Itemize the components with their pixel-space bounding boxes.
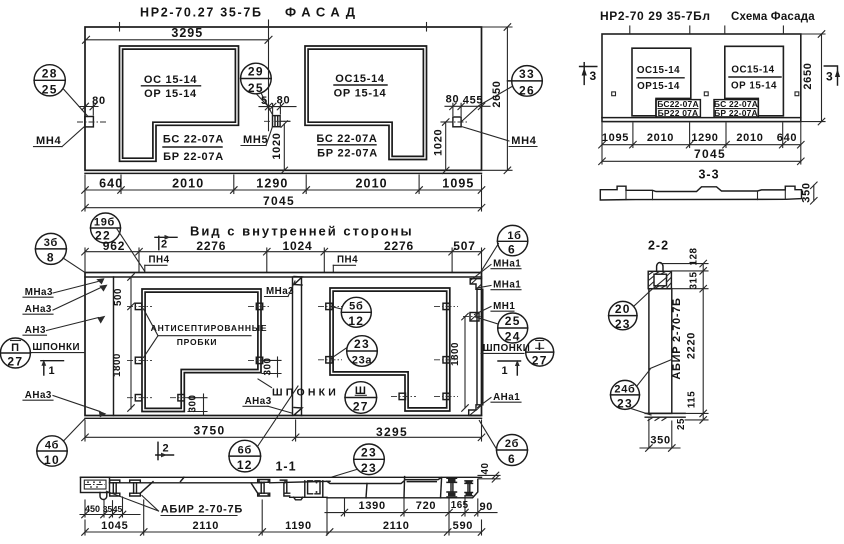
svg-text:315: 315: [689, 272, 700, 290]
svg-text:МНа1: МНа1: [493, 280, 521, 291]
svg-text:1: 1: [49, 365, 56, 377]
svg-text:ШПОНКИ: ШПОНКИ: [483, 343, 531, 354]
svg-text:ФАСАД: ФАСАД: [285, 5, 361, 20]
svg-text:165: 165: [451, 500, 469, 511]
svg-text:19б: 19б: [94, 217, 115, 229]
svg-text:128: 128: [689, 248, 700, 266]
svg-text:Вид с внутренней стороны: Вид с внутренней стороны: [190, 224, 414, 239]
svg-text:1020: 1020: [433, 129, 445, 156]
svg-text:НР2-70 29 35-7Бл: НР2-70 29 35-7Бл: [600, 9, 711, 23]
svg-text:2: 2: [161, 239, 168, 251]
svg-text:6б: 6б: [238, 445, 252, 457]
svg-text:23: 23: [361, 446, 377, 460]
svg-text:П: П: [11, 342, 20, 354]
svg-text:7045: 7045: [694, 147, 726, 161]
svg-text:80: 80: [446, 94, 460, 106]
svg-text:БР 22-07А: БР 22-07А: [163, 151, 224, 163]
svg-text:1800: 1800: [112, 353, 123, 377]
svg-text:80: 80: [277, 95, 291, 107]
svg-text:640: 640: [99, 177, 123, 191]
svg-text:1095: 1095: [442, 177, 474, 191]
svg-text:ОР 15-14: ОР 15-14: [144, 88, 197, 100]
svg-text:10: 10: [44, 453, 60, 467]
svg-text:1095: 1095: [602, 132, 629, 144]
svg-text:450: 450: [85, 504, 100, 514]
svg-text:90: 90: [479, 501, 493, 513]
svg-text:2010: 2010: [647, 132, 674, 144]
svg-text:2-2: 2-2: [648, 239, 669, 253]
svg-text:МН5: МН5: [243, 134, 268, 146]
svg-text:6: 6: [508, 243, 516, 257]
svg-text:2650: 2650: [491, 80, 503, 107]
svg-text:ПРОБКИ: ПРОБКИ: [177, 337, 218, 347]
svg-text:2010: 2010: [172, 177, 204, 191]
svg-text:ОС 15-14: ОС 15-14: [144, 74, 197, 86]
svg-text:ОС15-14: ОС15-14: [731, 65, 774, 76]
svg-text:115: 115: [687, 391, 698, 408]
svg-text:3295: 3295: [376, 425, 408, 439]
svg-text:2б: 2б: [505, 438, 519, 450]
svg-text:АНа3: АНа3: [25, 390, 52, 401]
svg-text:7045: 7045: [263, 194, 295, 208]
svg-text:640: 640: [777, 132, 797, 144]
svg-text:3б: 3б: [44, 237, 58, 249]
svg-text:1390: 1390: [359, 500, 386, 512]
svg-text:23: 23: [354, 337, 370, 351]
svg-text:Схема Фасада: Схема Фасада: [731, 11, 815, 23]
svg-text:АНа3: АНа3: [245, 396, 272, 407]
svg-text:АНТИСЕПТИРОВАННЫЕ: АНТИСЕПТИРОВАННЫЕ: [151, 323, 268, 333]
svg-text:I: I: [538, 341, 542, 353]
svg-text:2110: 2110: [383, 520, 410, 532]
svg-text:2010: 2010: [355, 177, 387, 191]
svg-text:БР22 07А: БР22 07А: [658, 108, 699, 118]
svg-text:29: 29: [248, 65, 264, 79]
svg-text:БР 22-07А: БР 22-07А: [317, 148, 378, 160]
svg-text:1190: 1190: [285, 520, 312, 532]
svg-text:300: 300: [263, 358, 274, 376]
svg-text:1: 1: [502, 365, 509, 377]
svg-text:МНа3: МНа3: [25, 287, 53, 298]
svg-text:25: 25: [676, 418, 687, 430]
svg-text:27: 27: [7, 355, 23, 369]
svg-text:1045: 1045: [101, 520, 128, 532]
svg-text:ОС15-14: ОС15-14: [637, 65, 680, 76]
svg-text:2: 2: [163, 443, 170, 455]
svg-text:20: 20: [615, 302, 631, 316]
svg-text:27: 27: [532, 354, 548, 368]
svg-text:350: 350: [801, 182, 813, 202]
svg-text:БР 22-07А: БР 22-07А: [714, 108, 758, 118]
svg-text:ОР15-14: ОР15-14: [637, 81, 680, 92]
svg-text:507: 507: [453, 239, 475, 253]
svg-text:АБИР 2-70-7Б: АБИР 2-70-7Б: [161, 504, 243, 516]
svg-text:33: 33: [519, 67, 535, 81]
svg-text:23: 23: [615, 317, 631, 331]
svg-text:25: 25: [505, 314, 521, 328]
svg-text:1б: 1б: [507, 230, 521, 242]
svg-text:АНа3: АНа3: [25, 304, 52, 315]
svg-text:3: 3: [590, 69, 598, 83]
svg-text:ШПОНКИ: ШПОНКИ: [32, 342, 80, 353]
svg-text:40: 40: [480, 463, 491, 475]
svg-text:1024: 1024: [283, 239, 313, 253]
svg-text:1290: 1290: [256, 177, 288, 191]
svg-text:АБИР 2-70-7Б: АБИР 2-70-7Б: [671, 297, 683, 379]
svg-text:962: 962: [103, 239, 125, 253]
svg-text:5б: 5б: [349, 301, 363, 313]
svg-text:АНа1: АНа1: [493, 392, 520, 403]
svg-text:1800: 1800: [450, 342, 461, 366]
svg-text:2276: 2276: [196, 239, 226, 253]
svg-text:1290: 1290: [691, 132, 718, 144]
svg-text:МН1: МН1: [493, 301, 515, 312]
svg-text:590: 590: [453, 520, 473, 532]
svg-text:ОР 15-14: ОР 15-14: [731, 81, 777, 92]
svg-text:ПН4: ПН4: [149, 255, 170, 266]
svg-text:МНа1: МНа1: [493, 259, 521, 270]
svg-text:АН3: АН3: [25, 325, 46, 336]
svg-text:720: 720: [416, 500, 436, 512]
svg-text:2010: 2010: [736, 132, 763, 144]
svg-text:350: 350: [650, 435, 670, 447]
svg-text:80: 80: [92, 95, 106, 107]
svg-text:3750: 3750: [194, 424, 226, 438]
svg-text:1-1: 1-1: [275, 460, 296, 474]
svg-text:ОС15-14: ОС15-14: [335, 73, 385, 85]
svg-text:2110: 2110: [192, 520, 219, 532]
svg-text:23: 23: [361, 461, 377, 475]
svg-text:МН4: МН4: [511, 135, 537, 147]
svg-text:24: 24: [505, 330, 521, 344]
svg-text:45: 45: [113, 504, 123, 514]
svg-text:8: 8: [47, 251, 55, 265]
svg-text:23а: 23а: [352, 355, 373, 367]
svg-text:4б: 4б: [45, 440, 59, 452]
svg-text:300: 300: [188, 395, 199, 413]
svg-text:ОР 15-14: ОР 15-14: [334, 88, 387, 100]
svg-text:3295: 3295: [171, 26, 203, 40]
svg-text:БС 22-07А: БС 22-07А: [163, 134, 224, 146]
svg-text:24б: 24б: [614, 384, 635, 396]
svg-text:1020: 1020: [271, 132, 283, 159]
svg-text:25: 25: [42, 83, 58, 97]
svg-text:3: 3: [826, 70, 834, 84]
svg-text:2650: 2650: [802, 62, 814, 89]
svg-text:12: 12: [237, 458, 253, 472]
svg-text:3-3: 3-3: [698, 168, 719, 182]
svg-text:6: 6: [508, 452, 516, 466]
svg-text:БС 22-07А: БС 22-07А: [316, 133, 377, 145]
svg-text:35: 35: [103, 504, 113, 514]
svg-text:МН4: МН4: [36, 135, 62, 147]
svg-text:26: 26: [519, 84, 535, 98]
svg-text:2220: 2220: [686, 332, 698, 359]
svg-text:ПН4: ПН4: [337, 255, 358, 266]
svg-text:НР2-70.27 35-7Б: НР2-70.27 35-7Б: [140, 6, 263, 20]
svg-text:ШПОНКИ: ШПОНКИ: [272, 387, 339, 399]
svg-text:28: 28: [42, 67, 58, 81]
svg-text:12: 12: [348, 314, 364, 328]
svg-text:500: 500: [113, 288, 124, 306]
svg-text:27: 27: [353, 400, 369, 414]
svg-text:2276: 2276: [384, 239, 414, 253]
